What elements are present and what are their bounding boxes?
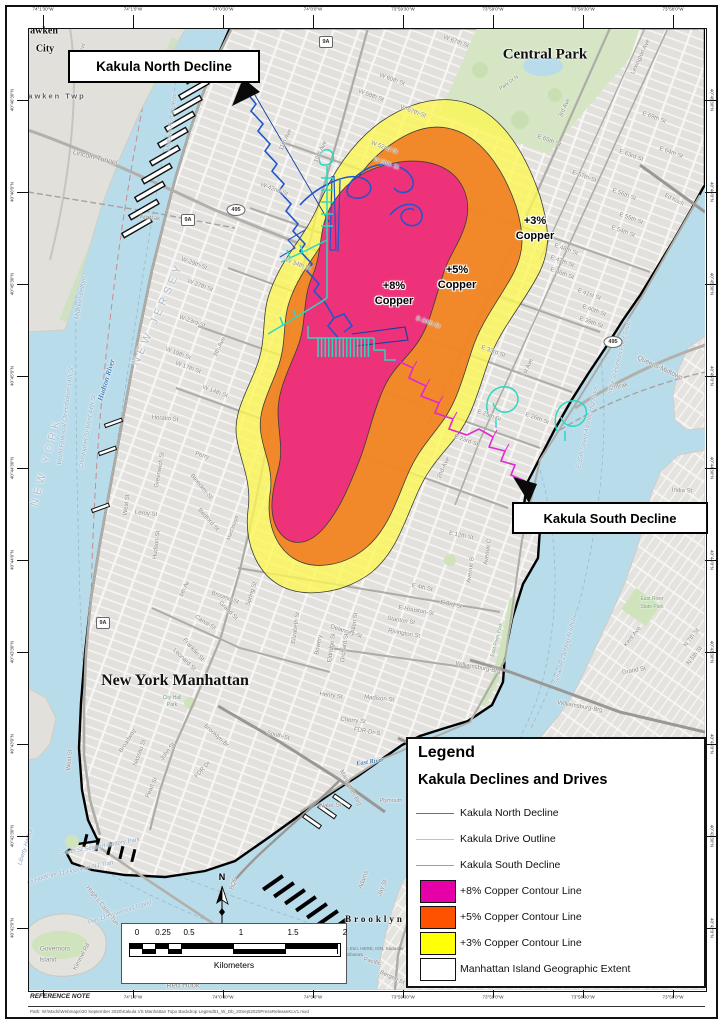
legend-item-label: Kakula South Decline — [460, 859, 560, 871]
graticule-label: 74°1'0"W — [124, 7, 143, 12]
graticule-tick — [17, 652, 28, 653]
legend-swatch — [416, 839, 454, 840]
graticule-tick — [17, 192, 28, 193]
graticule-label: 40°45'0"N — [10, 366, 15, 386]
graticule-tick — [493, 15, 494, 28]
callout-south-decline: Kakula South Decline — [512, 502, 708, 534]
legend: Legend Kakula Declines and Drives Kakula… — [406, 737, 706, 988]
graticule-label: 40°43'30"N — [710, 641, 715, 664]
graticule-tick — [17, 376, 28, 377]
graticule-tick — [17, 744, 28, 745]
legend-swatch — [420, 958, 456, 981]
graticule-tick — [313, 15, 314, 28]
scale-bar-unit: Kilometers — [122, 960, 346, 970]
copper-label: +8%Copper — [375, 279, 414, 309]
graticule-label: 74°1'0"W — [124, 995, 143, 1000]
legend-subtitle: Kakula Declines and Drives — [418, 772, 607, 788]
legend-item: +5% Copper Contour Line — [408, 905, 704, 929]
graticule-label: 40°44'30"N — [10, 457, 15, 480]
legend-item: Kakula South Decline — [408, 853, 704, 877]
graticule-tick — [17, 560, 28, 561]
scale-bar-tick-label: 0.25 — [155, 928, 171, 937]
graticule-label: 73°59'0"W — [482, 7, 503, 12]
graticule-label: 40°46'30"N — [10, 89, 15, 112]
graticule-label: 40°43'0"N — [10, 734, 15, 754]
graticule-tick — [583, 15, 584, 28]
graticule-label: 73°59'30"W — [391, 995, 415, 1000]
legend-item-label: +5% Copper Contour Line — [460, 911, 582, 923]
graticule-label: 40°42'0"N — [10, 918, 15, 938]
reference-note: REFERENCE NOTE — [30, 993, 90, 1000]
graticule-tick — [133, 15, 134, 28]
legend-title: Legend — [418, 744, 475, 762]
graticule-label: 74°1'30"W — [32, 7, 53, 12]
graticule-label: 73°59'30"W — [391, 7, 415, 12]
graticule-label: 73°58'30"W — [571, 7, 595, 12]
legend-item: Kakula North Decline — [408, 801, 704, 825]
graticule-label: 73°58'30"W — [571, 995, 595, 1000]
legend-item-label: Kakula Drive Outline — [460, 833, 556, 845]
graticule-label: 40°44'0"N — [710, 550, 715, 570]
graticule-label: 40°42'0"N — [710, 918, 715, 938]
graticule-label: 40°44'0"N — [10, 550, 15, 570]
graticule-tick — [17, 928, 28, 929]
graticule-label: 40°45'30"N — [710, 273, 715, 296]
graticule-label: 40°45'0"N — [710, 366, 715, 386]
north-arrow: N — [208, 872, 236, 928]
scale-bar-bar — [129, 943, 341, 957]
graticule-tick — [17, 284, 28, 285]
legend-item: +3% Copper Contour Line — [408, 931, 704, 955]
scale-bar-tick-label: 1 — [239, 928, 243, 937]
legend-swatch — [416, 813, 454, 814]
scale-bar-tick-label: 2 — [343, 928, 347, 937]
graticule-label: 73°58'0"W — [662, 7, 683, 12]
scale-bar-tick-label: 0 — [135, 928, 139, 937]
scale-bar-tick-label: 1.5 — [287, 928, 298, 937]
graticule-label: 40°42'30"N — [10, 825, 15, 848]
graticule-label: 40°44'30"N — [710, 457, 715, 480]
callout-north-decline: Kakula North Decline — [68, 50, 260, 83]
graticule-tick — [17, 468, 28, 469]
graticule-tick — [17, 100, 28, 101]
legend-item-label: +8% Copper Contour Line — [460, 885, 582, 897]
legend-swatch — [416, 865, 454, 866]
map-figure-page: awkenCityawken TwpLincoln-TunnelAmtrakJF… — [0, 0, 723, 1024]
graticule-label: 40°43'30"N — [10, 641, 15, 664]
graticule-label: 73°59'0"W — [482, 995, 503, 1000]
scale-bar: 00.250.511.52 Kilometers — [121, 923, 347, 984]
graticule-label: 40°46'0"N — [710, 182, 715, 202]
graticule-tick — [673, 15, 674, 28]
graticule-label: 40°45'30"N — [10, 273, 15, 296]
legend-item: +8% Copper Contour Line — [408, 879, 704, 903]
graticule-tick — [17, 836, 28, 837]
copper-label: +5%Copper — [438, 263, 477, 293]
legend-swatch — [420, 880, 456, 903]
bottom-rule — [28, 1006, 705, 1007]
graticule-label: 40°43'0"N — [710, 734, 715, 754]
graticule-label: 40°46'30"N — [710, 89, 715, 112]
graticule-label: 74°0'0"W — [304, 995, 323, 1000]
legend-swatch — [420, 906, 456, 929]
legend-item: Kakula Drive Outline — [408, 827, 704, 851]
drive-comb-teeth — [318, 338, 368, 357]
graticule-label: 73°58'0"W — [662, 995, 683, 1000]
scale-bar-tick-label: 0.5 — [183, 928, 194, 937]
copper-label: +3%Copper — [516, 214, 555, 244]
graticule-label: 40°42'30"N — [710, 825, 715, 848]
graticule-tick — [223, 15, 224, 28]
graticule-tick — [403, 15, 404, 28]
file-path-note: Path: W:\Mxds\Webmaps\30 September 2020\… — [30, 1009, 309, 1014]
graticule-label: 74°0'0"W — [304, 7, 323, 12]
graticule-label: 74°0'30"W — [212, 995, 233, 1000]
legend-item-label: Kakula North Decline — [460, 807, 559, 819]
graticule-label: 40°46'0"N — [10, 182, 15, 202]
graticule-label: 74°0'30"W — [212, 7, 233, 12]
legend-item: Manhattan Island Geographic Extent — [408, 957, 704, 981]
legend-item-label: +3% Copper Contour Line — [460, 937, 582, 949]
legend-item-label: Manhattan Island Geographic Extent — [460, 963, 630, 975]
legend-swatch — [420, 932, 456, 955]
north-arrow-label: N — [219, 872, 226, 882]
graticule-tick — [43, 15, 44, 28]
